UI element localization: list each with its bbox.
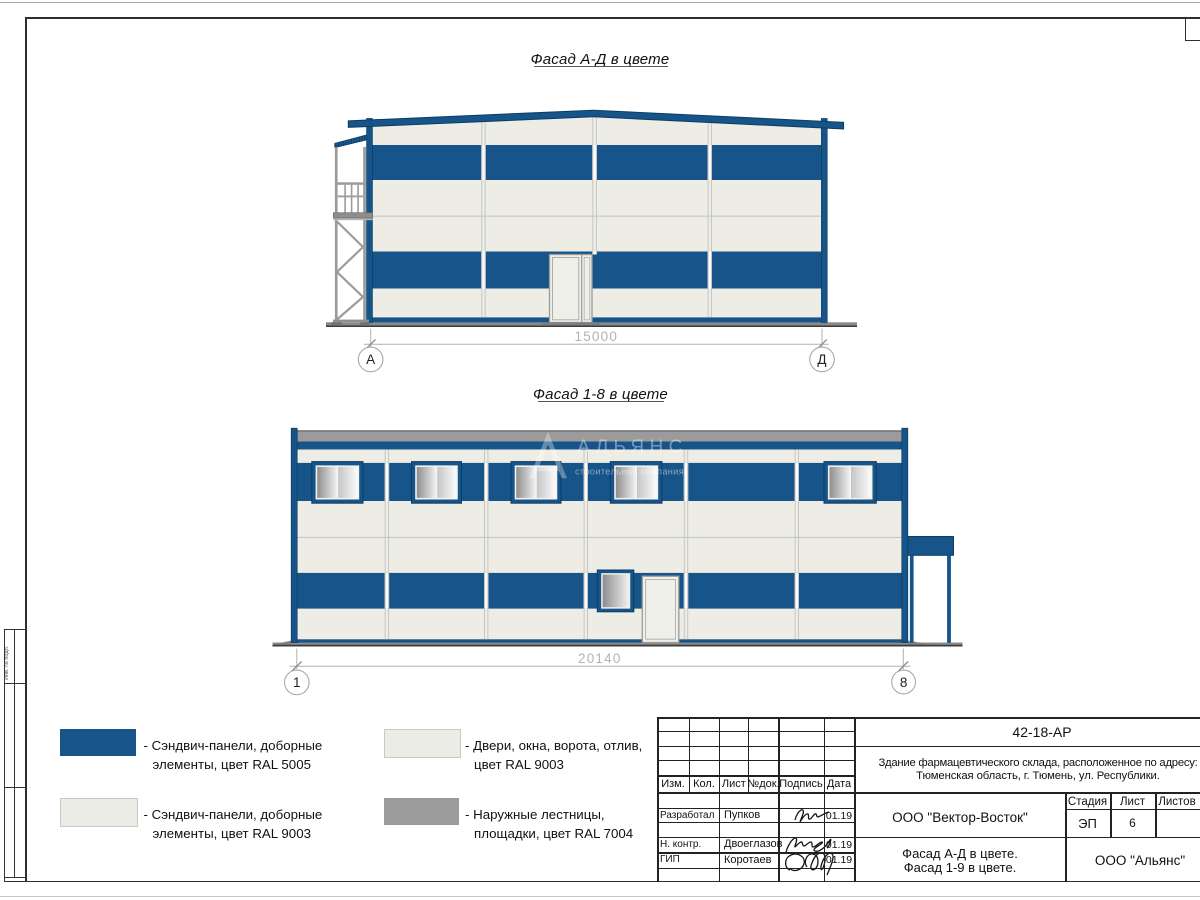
svg-text:А: А [366,352,375,367]
svg-text:15000: 15000 [575,329,619,344]
svg-text:Д: Д [817,352,826,367]
svg-text:20140: 20140 [578,651,622,666]
svg-text:АЛЬЯНС: АЛЬЯНС [577,436,687,457]
svg-text:строительная компания: строительная компания [575,466,684,476]
svg-text:1: 1 [293,675,301,690]
svg-text:8: 8 [900,675,908,690]
